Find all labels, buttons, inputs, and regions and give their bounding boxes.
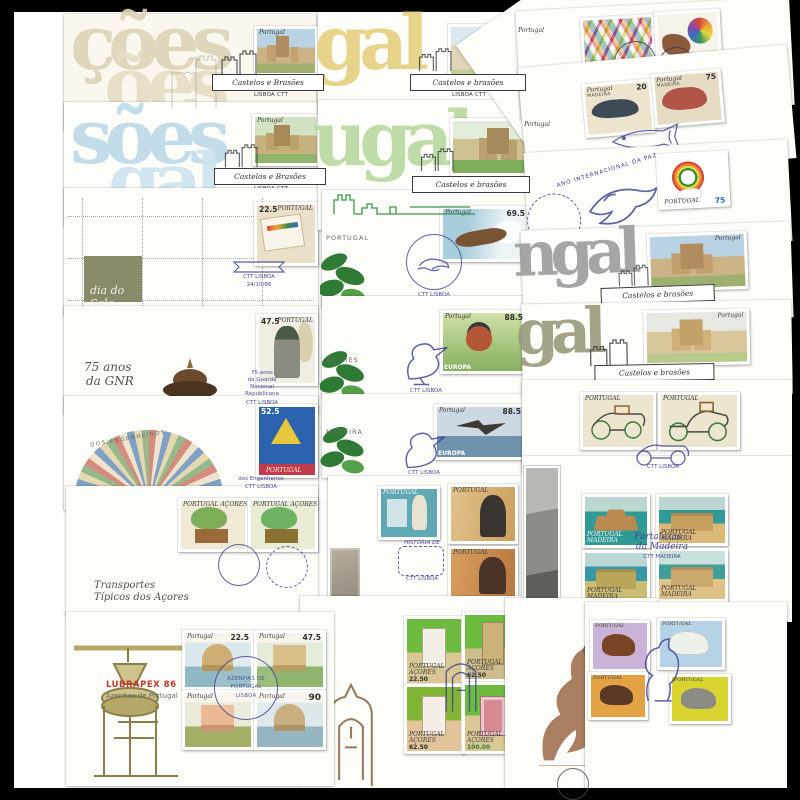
brand-label: LUBRAPEX 86 [106, 680, 177, 690]
postmark-text: dos Engenheiros [222, 476, 300, 483]
stamp-country: Portugal [257, 118, 283, 124]
stamp-value: 52.5 [261, 408, 280, 416]
postmark-sub: CTT MADEIRA [624, 554, 700, 561]
stamp-country: Portugal [259, 30, 285, 36]
castle-stamp: Portugal [647, 231, 749, 292]
gate-postmark-icon [442, 654, 480, 714]
stamp-value: 22.5 [259, 206, 278, 214]
stamp-country: PORTUGAL [383, 490, 419, 496]
stamp-value: 20 [636, 83, 647, 91]
circle-postmark [398, 546, 444, 576]
grid-line [202, 198, 203, 310]
fdc-transportes-acores: PORTUGAL AÇORES PORTUGAL AÇORES Transpor… [66, 486, 318, 616]
stamp-value: 47.5 [302, 634, 321, 642]
castle-postmark-icon [416, 146, 464, 172]
oxcart-stamp: PORTUGAL AÇORES [248, 498, 318, 552]
stamp-country: Portugal [445, 314, 471, 320]
oxcart-stamp-art [251, 501, 315, 549]
gothic-watermark: sões [70, 110, 223, 165]
fdc-dia-do-selo: dia do Selo 22.5 PORTUGAL CTT LISBOA 24/… [64, 188, 318, 316]
postmark-sub: CTT LISBOA [230, 400, 294, 407]
castle-stamp-art [646, 311, 747, 363]
postmark-text: AZENHAS DE [227, 676, 265, 683]
circle-postmark: AZENHAS DE PORTUGAL LISBOA [214, 656, 278, 720]
peace-stamp: PORTUGAL 75 [656, 150, 731, 210]
otter-postmark [406, 234, 462, 290]
postmark-sub: CTT LISBOA [222, 484, 300, 491]
stamp-value: 88.5 [504, 314, 523, 322]
green-castle-outline-illustration [330, 190, 480, 216]
horse-postmark-icon [629, 630, 693, 710]
stamp-value: 62.50 [409, 745, 428, 751]
stamp-country: PORTUGAL AÇORES [253, 502, 317, 508]
postmark-sub: CTT LISBOA [402, 292, 466, 299]
watermill-machinery-illustration [70, 626, 192, 782]
engineers-stamp: 52.5 PORTUGAL [256, 404, 318, 478]
stamp-country: PORTUGAL [277, 318, 313, 324]
stamp-country: PORTUGAL [453, 550, 489, 556]
photo-board: ções ões Portugal Castelos e Brasões LIS… [0, 0, 800, 800]
castle-postmark-icon [584, 336, 641, 367]
cover-caption: Transportes [94, 580, 155, 592]
grid-line [142, 198, 143, 310]
stamp-country: Portugal [524, 122, 550, 128]
stamp-country: PORTUGAL MADEIRA [661, 586, 728, 598]
oxcart-stamp-art [181, 501, 245, 549]
stamp-country: PORTUGAL AÇORES [183, 502, 247, 508]
stamp-country: Portugal [439, 408, 465, 414]
stamp-value: 75 [715, 196, 726, 204]
stamp-country: Portugal [187, 694, 213, 700]
postmark-text: Republicana [230, 391, 294, 398]
cover-caption: Típicos dos Açores [94, 592, 189, 604]
cover-caption: da GNR [86, 374, 134, 388]
postmark-text: PORTUGAL [230, 684, 261, 691]
stamp-country: PORTUGAL [663, 396, 699, 402]
stamp-value: 88.5 [502, 408, 521, 416]
edge-label: MADEIRA [326, 428, 363, 436]
banner-postmark-icon [232, 260, 286, 274]
stamp-value: 100.00 [467, 745, 490, 751]
sculpture-stamp: PORTUGAL [378, 486, 440, 540]
postmark-sub: CTT LISBOA [394, 576, 450, 583]
circle-postmark [557, 768, 589, 800]
harbour-photo-illustration [526, 468, 558, 616]
circle-postmark [218, 544, 260, 586]
stamp-country: PORTUGAL AÇORES [409, 732, 464, 744]
stamp-day-stamp: 22.5 PORTUGAL [254, 202, 318, 266]
postmark-sub: CTT LISBOA [630, 464, 696, 471]
stamp-country: PORTUGAL AÇORES [467, 732, 524, 744]
stamp-value: 90 [308, 694, 321, 703]
stamp-country: PORTUGAL [662, 622, 692, 627]
postmark-date: 24/10/86 [224, 282, 294, 289]
stamp-country: Portugal [187, 634, 213, 640]
edge-label: PORTUGAL [326, 234, 369, 242]
stamp-value: 22.5 [230, 634, 249, 642]
brand-subtitle: Azenhas de Portugal [106, 692, 178, 700]
stamp-day-panel: dia do Selo [84, 256, 142, 302]
stamp-country: PORTUGAL [595, 624, 625, 629]
fdc-cavalos: PORTUGAL PORTUGAL PORTUGAL PORTUGAL [585, 602, 787, 788]
postmark-text: CTT LISBOA [224, 274, 294, 281]
stamp-country: PORTUGAL [593, 676, 623, 681]
stamp-country: Portugal [715, 235, 741, 242]
stamp-country: PORTUGAL [453, 488, 489, 494]
stamp-value: 75 [705, 73, 716, 81]
castle-postmark-icon [414, 46, 462, 72]
fdc-lubrapex: LUBRAPEX 86 Azenhas de Portugal Portugal… [66, 612, 334, 786]
bird-postmark-icon [396, 426, 452, 474]
sculpture-stamp-art [381, 489, 437, 537]
stamp-country: PORTUGAL [266, 468, 302, 474]
castle-postmark-icon [614, 262, 659, 288]
cover-caption: 75 anos [84, 360, 131, 374]
circle-postmark [266, 546, 308, 588]
ribbon-postmark: Castelos e brasões [410, 74, 526, 91]
bird-postmark-icon [398, 336, 454, 386]
stamp-country: PORTUGAL MADEIRA [587, 588, 650, 600]
stamp-country: Portugal [717, 312, 743, 318]
stamp-country: PORTUGAL [277, 206, 313, 212]
stamp-country: PORTUGAL [585, 396, 621, 402]
grid-line [82, 198, 83, 310]
ribbon-postmark: Castelos e Brasões [214, 168, 326, 185]
stamp-country: Portugal [259, 634, 285, 640]
helmet-illustration [159, 354, 221, 402]
stamp-value: 22.50 [409, 677, 428, 683]
gothic-watermark: gal [314, 16, 421, 71]
postmark-script: da Madeira [622, 542, 702, 552]
portrait-stamp-art [451, 549, 515, 597]
ribbon-postmark: Castelos e Brasões [212, 74, 324, 91]
edge-label: AÇORES [326, 356, 359, 364]
drafting-triangle-stamp-art [259, 407, 315, 475]
postmark-text: LISBOA [235, 693, 256, 700]
stamp-country: Portugal [518, 28, 544, 34]
portrait-stamp-art [451, 487, 515, 541]
portrait-stamp: PORTUGAL [448, 546, 518, 600]
castle-stamp-art [650, 234, 746, 289]
car-postmark-icon [626, 434, 700, 468]
postmark-sub: CTT LISBOA [394, 388, 458, 395]
postmark-sub: LISBOA CTT [226, 92, 316, 99]
castle-stamp: Portugal [643, 308, 750, 366]
stamp-value: 69.5 [506, 210, 525, 218]
castle-postmark-icon [216, 48, 268, 76]
otter-postmark-icon [414, 250, 454, 274]
postmark-sub: CTT LISBOA [392, 470, 456, 477]
castle-postmark-icon [218, 142, 270, 168]
portrait-stamp: PORTUGAL [448, 484, 518, 544]
postmark-script: Fortalezas [618, 532, 698, 542]
